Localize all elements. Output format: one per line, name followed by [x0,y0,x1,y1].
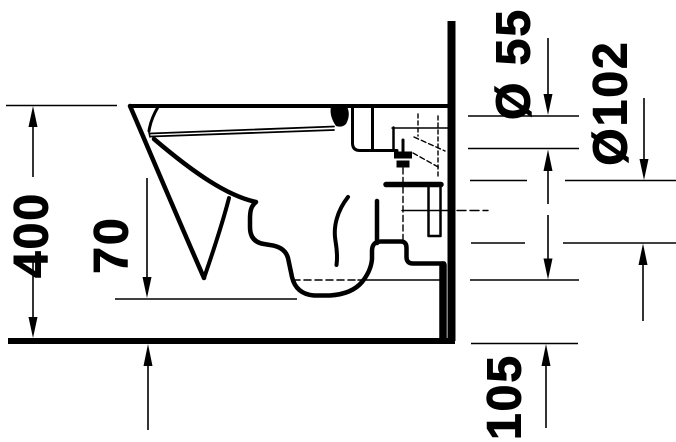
arrowhead-up [144,344,153,366]
dim-400-label: 400 [6,192,59,278]
arrowhead-up [639,244,648,266]
dimension-105: 105 [470,215,579,440]
bolt-head [394,152,412,159]
rim-inner-line [149,107,158,131]
dimension-70: 70 [86,178,298,430]
arrowhead-up [544,150,553,172]
dim-dia55-label: Ø 55 [488,8,541,120]
arrowhead-down [143,277,152,298]
technical-drawing-canvas: 400 70 Ø 55 Ø102 10 [0,0,676,442]
hidden-line-2 [413,153,440,168]
arrowhead-down [544,94,553,115]
toilet-section-drawing: 400 70 Ø 55 Ø102 10 [0,0,676,442]
arrowhead-down [544,259,553,280]
arrowhead-down [640,159,649,180]
bolt-nut [397,161,410,168]
weir-line [335,197,348,265]
front-inner-edge [204,198,229,278]
arrowhead-down [29,317,38,338]
toilet-outline [130,106,488,339]
seat-hinge [331,107,349,127]
dimension-dia-55: Ø 55 [468,8,579,204]
dim-70-label: 70 [86,216,139,273]
hidden-line-1 [414,137,445,151]
arrowhead-up [29,106,38,127]
dim-105-label: 105 [479,354,532,440]
arrowhead-up [542,344,551,366]
tank-outline [353,108,398,151]
wall-and-floor [8,21,455,341]
dim-dia102-label: Ø102 [585,40,638,165]
